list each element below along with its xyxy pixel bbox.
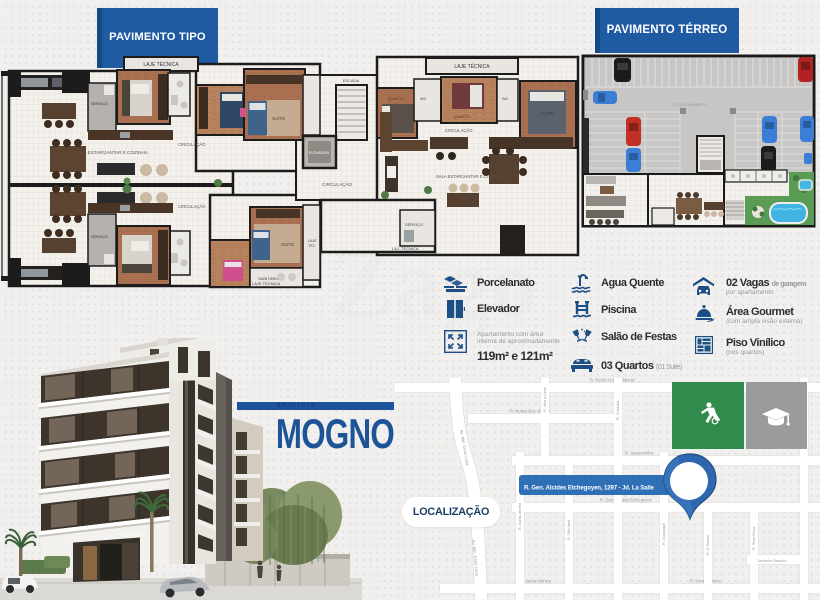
- svg-text:LAJE TÉCNICA: LAJE TÉCNICA: [252, 281, 280, 286]
- svg-text:CIRCULAÇÃO: CIRCULAÇÃO: [178, 204, 206, 209]
- svg-text:LAJ. TÉCNICA: LAJ. TÉCNICA: [392, 246, 419, 251]
- svg-text:SERVIÇO: SERVIÇO: [405, 222, 423, 227]
- svg-text:QUARTO: QUARTO: [454, 114, 471, 119]
- svg-text:R. Gen. Alcides Etchegoyen: R. Gen. Alcides Etchegoyen: [600, 498, 653, 503]
- svg-text:CIRCULAÇÃO: CIRCULAÇÃO: [322, 181, 353, 187]
- svg-text:SUÍTE: SUÍTE: [281, 241, 294, 247]
- svg-text:WC: WC: [420, 97, 427, 101]
- svg-text:SALA ESTAR/JANTAR E COZINHA: SALA ESTAR/JANTAR E COZINHA: [75, 150, 149, 155]
- svg-text:R. Córdoba: R. Córdoba: [616, 400, 620, 420]
- svg-text:ELEVADOR: ELEVADOR: [309, 151, 330, 155]
- svg-text:SERVIÇO: SERVIÇO: [91, 235, 108, 239]
- svg-text:QUARTO: QUARTO: [388, 96, 405, 101]
- svg-text:CIRCULAÇÃO: CIRCULAÇÃO: [445, 128, 473, 133]
- svg-text:CIRCULAÇÃO: CIRCULAÇÃO: [178, 142, 206, 147]
- svg-text:SERVIÇO: SERVIÇO: [91, 102, 108, 106]
- svg-text:SUÍTE: SUÍTE: [540, 110, 553, 116]
- svg-text:WC: WC: [502, 97, 509, 101]
- svg-text:R. Guayaquil: R. Guayaquil: [662, 523, 666, 545]
- svg-text:R. Jacarezinho: R. Jacarezinho: [625, 451, 654, 456]
- svg-text:LAJE: LAJE: [308, 239, 317, 243]
- svg-text:ESCADA: ESCADA: [343, 78, 360, 83]
- svg-text:R. Pedro Antônio Maciel: R. Pedro Antônio Maciel: [590, 378, 635, 383]
- svg-text:SALA ESTAR/JANTAR E COZINHA: SALA ESTAR/JANTAR E COZINHA: [436, 174, 503, 179]
- svg-text:R. Gen. Alcides Etchegoyen, 12: R. Gen. Alcides Etchegoyen, 1297 - Jd. L…: [524, 486, 655, 492]
- svg-text:R. Santa Amélia: R. Santa Amélia: [518, 502, 522, 530]
- svg-text:R. Vina y Lima: R. Vina y Lima: [543, 386, 547, 412]
- svg-text:R. Santa Mônica: R. Santa Mônica: [520, 579, 552, 584]
- svg-text:R. S.Teresa: R. S.Teresa: [706, 534, 710, 555]
- svg-text:LAJE TÉCNICA: LAJE TÉCNICA: [143, 61, 179, 68]
- svg-text:R. São Abel: R. São Abel: [567, 520, 571, 540]
- svg-text:ESTACIONAMENTO: ESTACIONAMENTO: [673, 103, 707, 107]
- svg-text:TEC: TEC: [308, 244, 316, 248]
- svg-text:R. Terra Nova: R. Terra Nova: [752, 526, 756, 550]
- svg-text:SUÍTE: SUÍTE: [272, 115, 285, 121]
- svg-text:LAJE TÉCNICA: LAJE TÉCNICA: [454, 63, 490, 70]
